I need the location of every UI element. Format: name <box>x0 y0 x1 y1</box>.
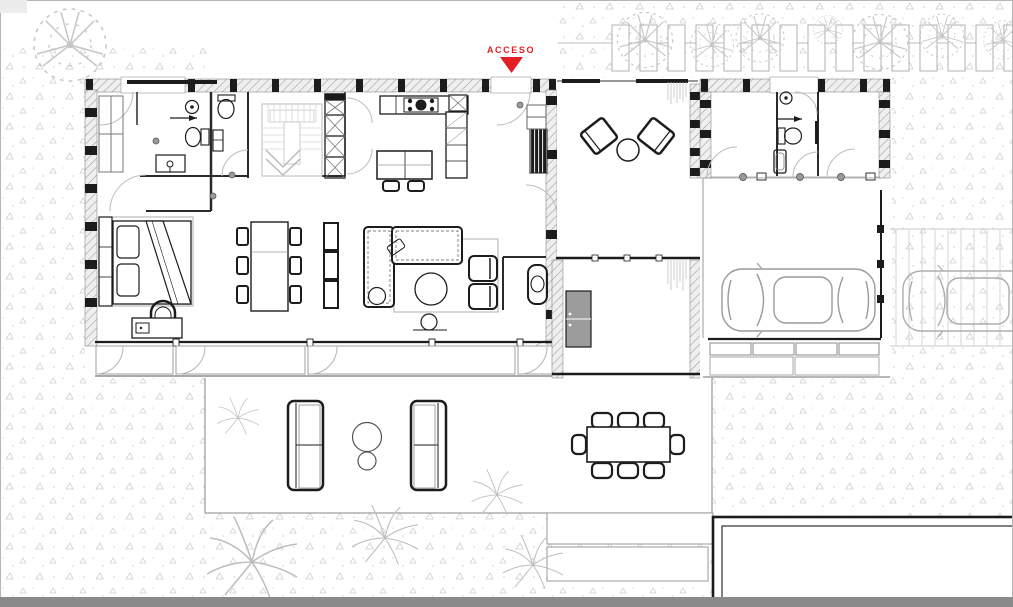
acceso-marker: ACCESO <box>487 45 535 73</box>
towel-rail <box>815 121 818 144</box>
outdoor-chair <box>618 413 638 428</box>
hall-cabinet <box>566 291 591 347</box>
exterior-wall-left <box>85 90 97 346</box>
floor-plan-page: ACCESO <box>0 0 1013 607</box>
pool <box>713 517 1013 607</box>
acceso-label: ACCESO <box>487 45 535 55</box>
outdoor-sofa <box>288 401 323 490</box>
floor-plan-canvas: ACCESO <box>0 0 1013 607</box>
armchair <box>469 256 497 281</box>
acceso-arrow-icon <box>500 57 523 73</box>
outdoor-side-table <box>358 452 376 470</box>
dining-table <box>251 222 288 311</box>
outdoor-sofa <box>411 401 446 490</box>
garage-door <box>703 339 890 377</box>
outdoor-dining-table <box>587 427 670 462</box>
garden-gravel-mid <box>700 378 890 513</box>
main-house <box>85 77 557 378</box>
outdoor-chair <box>670 435 684 454</box>
sideboard <box>324 223 338 308</box>
ottoman <box>369 288 386 305</box>
outdoor-chair <box>592 413 612 428</box>
fireplace <box>530 129 547 173</box>
outdoor-chair <box>618 463 638 478</box>
armchair <box>469 284 497 309</box>
guest-wing <box>700 77 892 378</box>
outdoor-chair <box>572 435 586 454</box>
bottom-bar <box>0 597 1013 607</box>
outdoor-chair <box>644 463 664 478</box>
patio-table <box>617 139 639 161</box>
courtyard <box>552 79 701 378</box>
terrace <box>205 377 712 513</box>
outdoor-chair <box>592 463 612 478</box>
garden-steps <box>547 513 713 581</box>
corner-artifact <box>0 0 27 13</box>
outdoor-chair <box>644 413 664 428</box>
coffee-table <box>415 273 447 305</box>
outdoor-side-table <box>353 423 382 452</box>
